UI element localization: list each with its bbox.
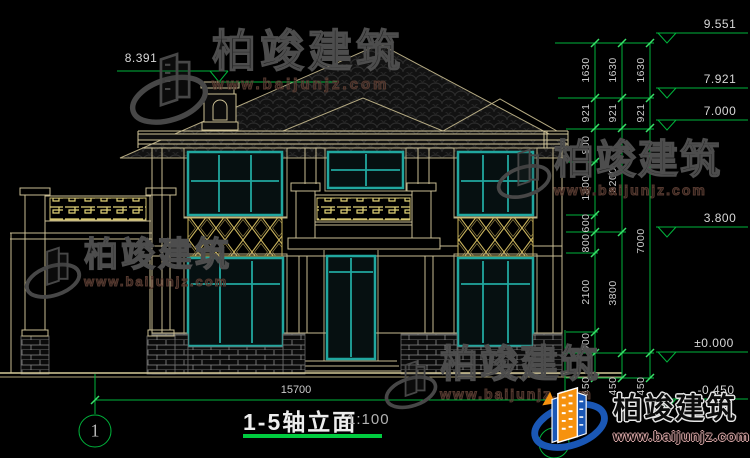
dim-label: 921 bbox=[635, 103, 647, 122]
dim-label: 921 bbox=[580, 103, 592, 122]
cad-elevation-sheet: 1630 921 800 1800 600 800 2100 900 450 1… bbox=[0, 0, 750, 458]
axis-number: 1 bbox=[91, 421, 100, 442]
elevation-label: 7.000 bbox=[704, 104, 737, 118]
window-1f-left bbox=[188, 258, 283, 346]
elevation-label: 9.551 bbox=[704, 17, 737, 31]
dim-label: 921 bbox=[607, 103, 619, 122]
dim-label: 1630 bbox=[635, 57, 647, 82]
hip-roof bbox=[120, 44, 566, 158]
elevation-symbols bbox=[658, 33, 676, 409]
dim-label: 3200 bbox=[607, 167, 619, 192]
ground-line bbox=[0, 373, 622, 377]
title-underline bbox=[243, 434, 382, 438]
dim-label: 1630 bbox=[580, 57, 592, 82]
window-2f-left bbox=[188, 152, 282, 215]
elevation-label: 3.800 bbox=[704, 211, 737, 225]
entry-steps bbox=[301, 361, 401, 371]
total-width-dim: 15700 bbox=[281, 384, 312, 396]
window-1f-right bbox=[458, 258, 533, 346]
drawing-title: 1-5轴立面 bbox=[243, 403, 357, 437]
dim-label: 1630 bbox=[607, 57, 619, 82]
brand-logo-icon bbox=[528, 380, 611, 458]
dim-label: 1800 bbox=[580, 175, 592, 200]
dim-label: 3800 bbox=[607, 280, 619, 305]
dim-label: 600 bbox=[580, 213, 592, 232]
brand-logo: 柏竣建筑 www.baijunjz.com bbox=[528, 380, 750, 458]
chimney bbox=[201, 82, 239, 130]
dim-label: 900 bbox=[580, 332, 592, 351]
window-2f-right bbox=[458, 152, 533, 215]
drawing-scale: 1:100 bbox=[347, 411, 390, 428]
diamond-railings bbox=[188, 218, 533, 256]
brand-logo-site: www.baijunjz.com bbox=[613, 428, 750, 444]
dim-label: 2100 bbox=[580, 279, 592, 304]
brand-logo-text: 柏竣建筑 bbox=[613, 394, 750, 426]
dim-label: 800 bbox=[580, 233, 592, 252]
dim-label: 7000 bbox=[635, 228, 647, 253]
wall-lattice bbox=[50, 198, 146, 220]
fret-railing bbox=[317, 198, 410, 220]
elevation-label: 7.921 bbox=[704, 72, 737, 86]
center-balcony bbox=[288, 183, 440, 249]
elevation-label: 8.391 bbox=[125, 51, 158, 65]
elevation-label: ±0.000 bbox=[694, 336, 734, 350]
dim-label: 800 bbox=[580, 135, 592, 154]
